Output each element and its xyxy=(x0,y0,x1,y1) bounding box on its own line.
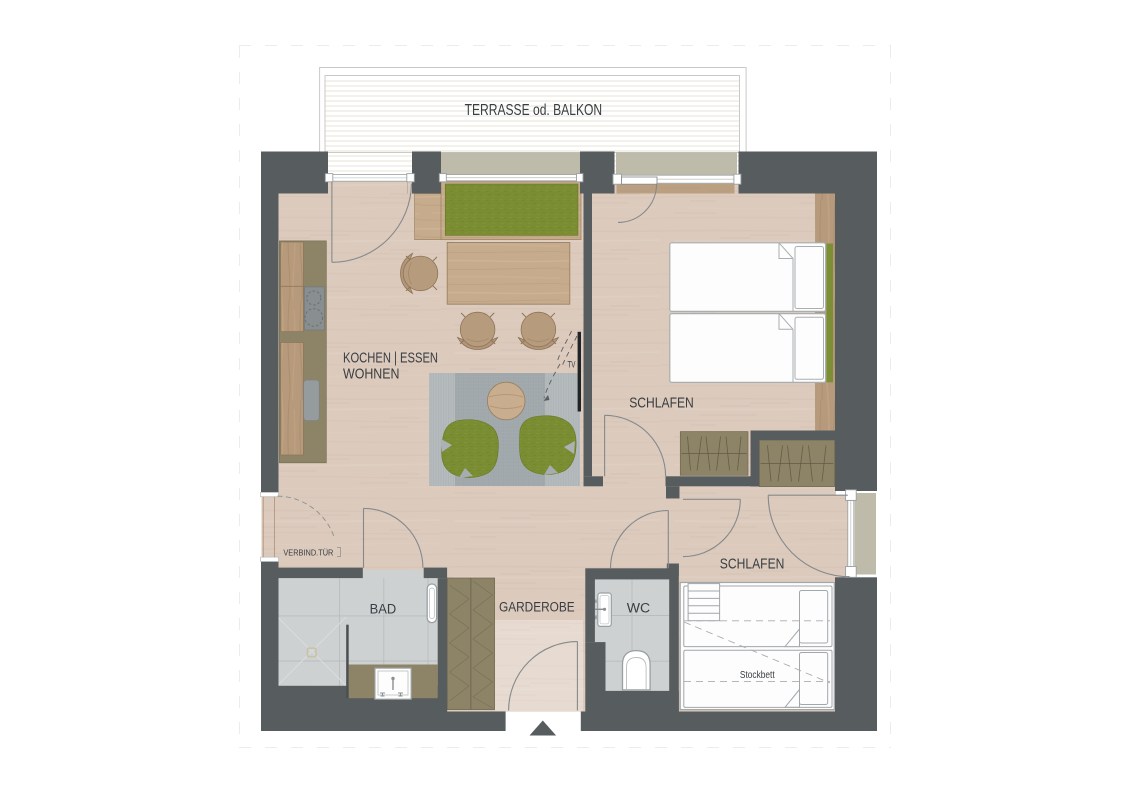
svg-text:WC: WC xyxy=(627,600,650,616)
svg-text:TERRASSE od. BALKON: TERRASSE od. BALKON xyxy=(465,102,602,119)
svg-text:VERBIND.TÜR: VERBIND.TÜR xyxy=(283,548,333,557)
svg-text:KOCHEN | ESSEN: KOCHEN | ESSEN xyxy=(343,351,438,367)
svg-text:Stockbett: Stockbett xyxy=(740,669,775,681)
svg-text:GARDEROBE: GARDEROBE xyxy=(499,600,575,616)
svg-text:TV: TV xyxy=(567,360,575,371)
svg-text:BAD: BAD xyxy=(370,601,397,617)
svg-text:SCHLAFEN: SCHLAFEN xyxy=(629,396,694,412)
svg-text:SCHLAFEN: SCHLAFEN xyxy=(720,557,785,573)
svg-text:WOHNEN: WOHNEN xyxy=(343,367,400,383)
